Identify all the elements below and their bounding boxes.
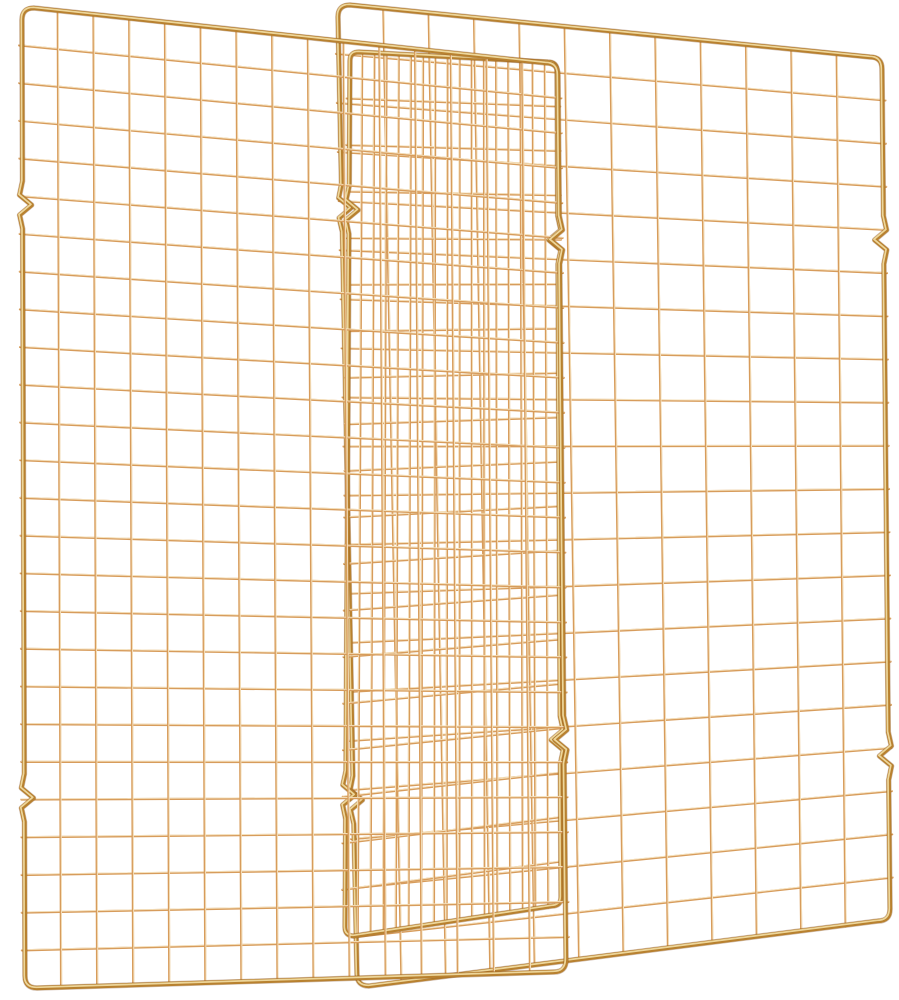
product-photo	[0, 0, 899, 1000]
cooling-racks-photo	[0, 0, 899, 1000]
cooling-rack-back	[336, 4, 893, 986]
cooling-rack-front	[19, 7, 569, 988]
